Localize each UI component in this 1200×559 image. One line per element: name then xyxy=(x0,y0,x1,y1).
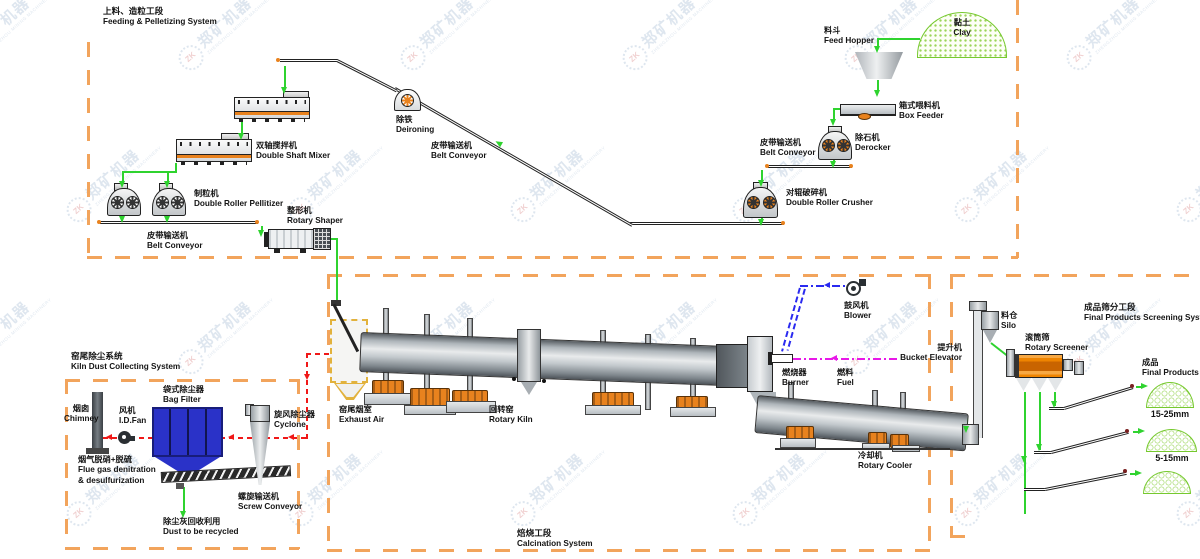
watermark-brand-text: 郑矿机器ZHENGZHOU MINING MACHINERY xyxy=(1083,0,1162,55)
kiln-support-base xyxy=(364,393,412,405)
derocker-roller-icon xyxy=(837,139,850,152)
label-cyclone-zh: 旋风除尘器 xyxy=(274,410,315,420)
calcination-border-top xyxy=(327,274,930,277)
label-deironing: 除铁 Deironing xyxy=(396,115,434,136)
mixer-bolts xyxy=(180,142,248,146)
label-cooler-en: Rotary Cooler xyxy=(858,461,912,471)
label-derocker-zh: 除石机 xyxy=(855,133,891,143)
label-final-products: 成品 Final Products xyxy=(1142,358,1199,379)
watermark: ZK郑矿机器ZHENGZHOU MINING MACHINERY xyxy=(395,0,497,75)
label-bagfilter-zh: 袋式除尘器 xyxy=(163,385,204,395)
belt-pulley-dot xyxy=(255,220,259,224)
kiln-support-base xyxy=(670,407,716,417)
flue-arrow xyxy=(228,434,234,440)
flow-dust-recycle xyxy=(183,487,185,513)
label-flue-gas: 烟气脱硝+脱硫 Flue gas denitration & desulfuri… xyxy=(78,455,158,486)
label-mixer-zh: 双轴搅拌机 xyxy=(256,141,330,151)
dust-border-top xyxy=(65,379,299,382)
label-belt-right-zh: 皮带输送机 xyxy=(760,138,816,148)
fuel-arrow xyxy=(831,355,837,361)
watermark-sub-text: ZHENGZHOU MINING MACHINERY xyxy=(1095,0,1163,55)
watermark-gear-icon: ZK xyxy=(505,496,540,531)
air-line-diagonal xyxy=(781,288,801,352)
shaper-foot xyxy=(300,249,306,253)
label-blower-zh: 鼓风机 xyxy=(844,301,871,311)
label-final-zh: 成品 xyxy=(1142,358,1199,368)
belt-pulley-dot xyxy=(765,164,769,168)
label-blower: 鼓风机 Blower xyxy=(844,301,871,322)
label-dust-recycled: 除尘灰回收利用 Dust to be recycled xyxy=(163,517,239,538)
silo-body xyxy=(981,311,999,330)
section-screening-en: Final Products Screening System xyxy=(1084,313,1200,323)
label-burner-zh: 燃烧器 xyxy=(782,368,809,378)
screener-hopper-v xyxy=(1016,378,1031,391)
label-burner-en: Burner xyxy=(782,378,809,388)
burner-pipe xyxy=(771,354,793,363)
section-label-feeding: 上料、造粒工段 Feeding & Pelletizing System xyxy=(103,6,217,27)
watermark-sub-text: ZHENGZHOU MINING MACHINERY xyxy=(0,0,53,55)
watermark: ZK郑矿机器ZHENGZHOU MINING MACHINERY xyxy=(949,132,1051,228)
label-clay: 黏土 Clay xyxy=(917,18,1007,39)
label-shaper-en: Rotary Shaper xyxy=(287,216,343,226)
watermark-gear-icon: ZK xyxy=(949,192,984,227)
label-fuel-zh: 燃料 xyxy=(837,368,854,378)
label-crusher-zh: 对辊破碎机 xyxy=(786,188,873,198)
feeding-section-border-right xyxy=(1016,0,1019,258)
flow-arrow xyxy=(758,180,764,187)
label-screw-en: Screw Conveyor xyxy=(238,502,302,512)
flow-shaper-to-kiln-drop xyxy=(336,238,338,302)
label-bagfilter-en: Bag Filter xyxy=(163,395,204,405)
screener-hopper-v xyxy=(1048,378,1063,391)
mixer-strip xyxy=(235,111,309,115)
pelletizer-roller-icon xyxy=(111,196,124,209)
label-derocker: 除石机 Derocker xyxy=(855,133,891,154)
blower-outlet xyxy=(859,279,866,286)
watermark-brand-text: 郑矿机器ZHENGZHOU MINING MACHINERY xyxy=(0,285,53,359)
deironing-magnet-icon xyxy=(401,94,414,107)
cooler-support-base xyxy=(780,438,816,448)
label-belt-conveyor-incline: 皮带输送机 Belt Conveyor xyxy=(431,141,487,162)
label-box-feeder-en: Box Feeder xyxy=(899,111,944,121)
flow-arrow xyxy=(258,230,264,237)
watermark-gear-icon: ZK xyxy=(505,192,540,227)
watermark: ZK郑矿机器ZHENGZHOU MINING MACHINERY xyxy=(1171,132,1200,228)
watermark-gear-icon: ZK xyxy=(1171,496,1200,531)
flow-screener-out-2 xyxy=(1039,392,1041,450)
section-dust-en: Kiln Dust Collecting System xyxy=(71,362,180,372)
label-feed-hopper-zh: 料斗 xyxy=(824,26,874,36)
label-box-feeder: 箱式喂料机 Box Feeder xyxy=(899,101,944,122)
flow-arrow xyxy=(164,216,170,223)
watermark-sub-text: ZHENGZHOU MINING MACHINERY xyxy=(207,298,275,360)
section-feeding-en: Feeding & Pelletizing System xyxy=(103,17,217,27)
watermark-sub-text: ZHENGZHOU MINING MACHINERY xyxy=(761,450,829,512)
section-dust-zh: 窑尾除尘系统 xyxy=(71,351,180,362)
label-deironing-zh: 除铁 xyxy=(396,115,434,125)
screener-drum-cap xyxy=(1015,354,1019,378)
cyclone-body xyxy=(250,405,270,422)
product-conveyor-3 xyxy=(1045,472,1127,491)
watermark-gear-icon: ZK xyxy=(1061,40,1096,75)
label-feed-hopper: 料斗 Feed Hopper xyxy=(824,26,874,47)
double-shaft-mixer-1 xyxy=(234,97,310,119)
label-feed-hopper-en: Feed Hopper xyxy=(824,36,874,46)
label-fluegas-zh: 烟气脱硝+脱硫 xyxy=(78,455,158,465)
section-calcination-en: Calcination System xyxy=(517,539,593,549)
flue-gas-line-top xyxy=(306,353,331,355)
watermark: ZK郑矿机器ZHENGZHOU MINING MACHINERY xyxy=(0,0,54,75)
label-screw-conveyor: 螺旋输送机 Screw Conveyor xyxy=(238,492,302,513)
watermark: ZK郑矿机器ZHENGZHOU MINING MACHINERY xyxy=(839,284,941,380)
label-crusher: 对辊破碎机 Double Roller Crusher xyxy=(786,188,873,209)
label-belt-left-zh: 皮带输送机 xyxy=(147,231,203,241)
box-feeder-roller xyxy=(858,113,871,120)
flow-arrow xyxy=(830,161,836,168)
product-conveyor-1 xyxy=(1064,386,1134,410)
flow-arrow xyxy=(119,216,125,223)
flow-arrow xyxy=(758,219,764,226)
label-belt-conveyor-left: 皮带输送机 Belt Conveyor xyxy=(147,231,203,252)
label-fluegas-en: Flue gas denitration & desulfurization xyxy=(78,465,158,486)
kiln-head-box xyxy=(716,344,748,388)
feed-hopper xyxy=(855,52,903,79)
label-kiln-en: Rotary Kiln xyxy=(489,415,533,425)
label-belt-conveyor-right: 皮带输送机 Belt Conveyor xyxy=(760,138,816,159)
flow-to-mixer1 xyxy=(284,66,286,89)
rotary-shaper xyxy=(268,229,314,249)
belt-pulley-dot xyxy=(97,220,101,224)
label-pelletizer-zh: 制粒机 xyxy=(194,189,283,199)
label-bag-filter: 袋式除尘器 Bag Filter xyxy=(163,385,204,406)
flow-arrow xyxy=(1141,383,1148,389)
watermark: ZK郑矿机器ZHENGZHOU MINING MACHINERY xyxy=(0,284,54,380)
kiln-junction-cone xyxy=(521,382,537,395)
product-pile-fines xyxy=(1143,471,1191,494)
crusher-roller-icon xyxy=(763,196,776,209)
product-conveyor-2 xyxy=(1051,431,1129,454)
watermark-sub-text: ZHENGZHOU MINING MACHINERY xyxy=(539,450,607,512)
product-pile-5-15 xyxy=(1146,429,1197,452)
mixer-feet xyxy=(181,162,247,166)
label-exhaust-zh: 窑尾烟室 xyxy=(339,405,384,415)
chimney-base xyxy=(86,448,109,454)
label-fuel-en: Fuel xyxy=(837,378,854,388)
label-fan-en: I.D.Fan xyxy=(119,416,146,426)
kiln-support-base xyxy=(585,405,641,415)
pelletizer-roller-icon xyxy=(126,196,139,209)
flow-arrow xyxy=(874,46,880,53)
screener-hopper-v xyxy=(1032,378,1047,391)
label-silo-zh: 料仓 xyxy=(1001,311,1017,321)
pelletizer-roller-icon xyxy=(171,196,184,209)
label-chimney: 烟囱 Chimney xyxy=(64,404,98,425)
bag-filter-divider xyxy=(169,409,171,455)
conveyor-head-pulley xyxy=(1125,429,1129,433)
watermark-sub-text: ZHENGZHOU MINING MACHINERY xyxy=(207,0,275,55)
watermark-gear-icon: ZK xyxy=(1171,192,1200,227)
id-fan-outlet xyxy=(129,436,135,441)
label-final-en: Final Products xyxy=(1142,368,1199,378)
shaper-flange xyxy=(264,232,268,247)
calcination-border-bottom xyxy=(327,549,930,552)
label-recycled-zh: 除尘灰回收利用 xyxy=(163,517,239,527)
flow-arrow xyxy=(1051,401,1057,408)
label-id-fan: 风机 I.D.Fan xyxy=(119,406,146,427)
label-shaper: 整形机 Rotary Shaper xyxy=(287,206,343,227)
label-clay-zh: 黏土 xyxy=(917,18,1007,28)
watermark-gear-icon: ZK xyxy=(617,40,652,75)
flow-arrow xyxy=(830,119,836,126)
flow-screener-out-1 xyxy=(1024,392,1026,514)
bucket-elevator-head xyxy=(969,301,987,311)
flow-arrow xyxy=(1135,470,1142,476)
belt-conveyor-top-flat xyxy=(280,59,338,62)
watermark-gear-icon: ZK xyxy=(173,40,208,75)
watermark-brand-text: 郑矿机器ZHENGZHOU MINING MACHINERY xyxy=(0,0,53,55)
belt-pulley-dot xyxy=(276,58,280,62)
air-arrow xyxy=(824,282,830,288)
blower-hub xyxy=(851,286,856,291)
section-calcination-zh: 焙烧工段 xyxy=(517,528,593,539)
label-cyclone-en: Cyclone xyxy=(274,420,315,430)
calcination-border-left xyxy=(327,274,330,551)
watermark-gear-icon: ZK xyxy=(61,192,96,227)
screw-conveyor-support xyxy=(176,483,184,489)
flow-arrow xyxy=(963,426,969,433)
label-size-5-15: 5-15mm xyxy=(1148,453,1196,464)
flow-arrow xyxy=(281,87,287,94)
watermark: ZK郑矿机器ZHENGZHOU MINING MACHINERY xyxy=(617,0,719,75)
watermark-gear-icon: ZK xyxy=(727,496,762,531)
mixer-strip xyxy=(177,154,251,158)
watermark: ZK郑矿机器ZHENGZHOU MINING MACHINERY xyxy=(727,436,829,532)
belt-pulley-dot xyxy=(849,164,853,168)
cooler-ground-line xyxy=(775,448,950,450)
screener-motor xyxy=(1074,361,1084,375)
screener-inlet xyxy=(1006,349,1015,377)
label-belt-incline-en: Belt Conveyor xyxy=(431,151,487,161)
label-belt-right-en: Belt Conveyor xyxy=(760,148,816,158)
watermark-brand-text: 郑矿机器ZHENGZHOU MINING MACHINERY xyxy=(417,0,496,55)
screening-border-bottom xyxy=(950,535,978,538)
flow-clay-to-hopper xyxy=(878,38,920,40)
watermark-gear-icon: ZK xyxy=(395,40,430,75)
section-feeding-zh: 上料、造粒工段 xyxy=(103,6,217,17)
product-conveyor-3-flat xyxy=(1024,488,1045,491)
label-elevator-zh: 提升机 xyxy=(890,343,962,353)
label-screener-zh: 滚筒筛 xyxy=(1025,333,1088,343)
label-pelletizer: 制粒机 Double Roller Pellitizer xyxy=(194,189,283,210)
label-chimney-zh: 烟囱 xyxy=(64,404,98,414)
section-label-screening: 成品筛分工段 Final Products Screening System xyxy=(1084,302,1200,323)
conveyor-head-pulley xyxy=(1130,384,1134,388)
label-exhaust-air: 窑尾烟室 Exhaust Air xyxy=(339,405,384,426)
flue-arrow xyxy=(106,434,112,440)
label-elevator-en: Bucket Elevator xyxy=(890,353,962,363)
flow-arrow xyxy=(1021,456,1027,463)
feeding-section-border-left xyxy=(87,42,90,258)
mixer-bolts xyxy=(238,100,306,104)
label-shaper-zh: 整形机 xyxy=(287,206,343,216)
pelletizer-roller-icon xyxy=(156,196,169,209)
crusher-roller-icon xyxy=(747,196,760,209)
watermark: ZK郑矿机器ZHENGZHOU MINING MACHINERY xyxy=(1061,0,1163,75)
air-line xyxy=(800,285,846,287)
label-size-15-25: 15-25mm xyxy=(1146,409,1194,420)
flow-arrow xyxy=(164,181,170,188)
flow-arrow xyxy=(1138,428,1145,434)
label-cooler-zh: 冷却机 xyxy=(858,451,912,461)
product-pile-15-25 xyxy=(1146,382,1194,408)
watermark-brand-text: 郑矿机器ZHENGZHOU MINING MACHINERY xyxy=(195,285,274,359)
label-box-feeder-zh: 箱式喂料机 xyxy=(899,101,944,111)
flow-arrow xyxy=(238,133,244,140)
watermark-brand-text: 郑矿机器ZHENGZHOU MINING MACHINERY xyxy=(527,437,606,511)
watermark-sub-text: ZHENGZHOU MINING MACHINERY xyxy=(983,450,1051,512)
flue-arrow-down xyxy=(304,374,310,380)
label-derocker-en: Derocker xyxy=(855,143,891,153)
label-recycled-en: Dust to be recycled xyxy=(163,527,239,537)
label-rotary-screener: 滚筒筛 Rotary Screener xyxy=(1025,333,1088,354)
section-screening-zh: 成品筛分工段 xyxy=(1084,302,1200,313)
screening-border-top xyxy=(950,274,1200,277)
screener-discharge-box xyxy=(1063,359,1073,371)
section-label-calcination: 焙烧工段 Calcination System xyxy=(517,528,593,549)
watermark-sub-text: ZHENGZHOU MINING MACHINERY xyxy=(429,0,497,55)
junction-dot xyxy=(542,379,546,383)
flue-arrow xyxy=(288,434,294,440)
derocker-roller-icon xyxy=(822,139,835,152)
label-exhaust-en: Exhaust Air xyxy=(339,415,384,425)
mixer-feet xyxy=(239,119,305,123)
conveyor-head-pulley xyxy=(1123,469,1127,473)
belt-conveyor-top-incline xyxy=(336,59,397,92)
label-clay-en: Clay xyxy=(917,28,1007,38)
dust-border-bottom xyxy=(65,547,299,550)
shaper-foot xyxy=(274,249,280,253)
label-kiln-zh: 回转窑 xyxy=(489,405,533,415)
label-fuel: 燃料 Fuel xyxy=(837,368,854,389)
rotary-shaper-grid xyxy=(313,228,331,250)
label-fan-zh: 风机 xyxy=(119,406,146,416)
belt-conveyor-right xyxy=(768,165,852,168)
label-blower-en: Blower xyxy=(844,311,871,321)
bag-filter-divider xyxy=(187,409,189,455)
id-fan-hub xyxy=(122,435,126,439)
flow-arrow xyxy=(874,90,880,97)
fuel-line xyxy=(793,358,897,360)
screening-border-left xyxy=(950,274,953,537)
rotary-screener-drum xyxy=(1015,354,1063,378)
label-rotary-kiln: 回转窑 Rotary Kiln xyxy=(489,405,533,426)
flow-arrow xyxy=(1036,444,1042,451)
product-conveyor-2-flat xyxy=(1034,451,1051,454)
label-mixer: 双轴搅拌机 Double Shaft Mixer xyxy=(256,141,330,162)
label-rotary-cooler: 冷却机 Rotary Cooler xyxy=(858,451,912,472)
label-silo: 料仓 Silo xyxy=(1001,311,1017,332)
watermark-gear-icon: ZK xyxy=(949,496,984,531)
label-deironing-en: Deironing xyxy=(396,125,434,135)
label-silo-en: Silo xyxy=(1001,321,1017,331)
flow-arrow xyxy=(119,181,125,188)
junction-dot xyxy=(512,377,516,381)
label-screw-zh: 螺旋输送机 xyxy=(238,492,302,502)
label-burner: 燃烧器 Burner xyxy=(782,368,809,389)
label-belt-left-en: Belt Conveyor xyxy=(147,241,203,251)
watermark-brand-text: 郑矿机器ZHENGZHOU MINING MACHINERY xyxy=(305,437,384,511)
label-screener-en: Rotary Screener xyxy=(1025,343,1088,353)
bag-filter-divider xyxy=(205,409,207,455)
label-pelletizer-en: Double Roller Pellitizer xyxy=(194,199,283,209)
process-flow-diagram: ZK郑矿机器ZHENGZHOU MINING MACHINERYZK郑矿机器ZH… xyxy=(0,0,1200,559)
section-label-dust: 窑尾除尘系统 Kiln Dust Collecting System xyxy=(71,351,180,372)
label-cyclone: 旋风除尘器 Cyclone xyxy=(274,410,315,431)
watermark-sub-text: ZHENGZHOU MINING MACHINERY xyxy=(0,298,53,360)
watermark-sub-text: ZHENGZHOU MINING MACHINERY xyxy=(651,0,719,55)
belt-pulley-dot xyxy=(781,221,785,225)
silo-cone xyxy=(983,330,997,343)
kiln-junction-box xyxy=(517,329,541,382)
feeding-section-border-bottom xyxy=(87,256,1018,259)
label-mixer-en: Double Shaft Mixer xyxy=(256,151,330,161)
watermark: ZK郑矿机器ZHENGZHOU MINING MACHINERY xyxy=(505,436,607,532)
label-belt-incline-zh: 皮带输送机 xyxy=(431,141,487,151)
watermark-brand-text: 郑矿机器ZHENGZHOU MINING MACHINERY xyxy=(971,133,1050,207)
label-crusher-en: Double Roller Crusher xyxy=(786,198,873,208)
dust-border-right xyxy=(297,379,300,549)
watermark-brand-text: 郑矿机器ZHENGZHOU MINING MACHINERY xyxy=(1193,133,1200,207)
double-shaft-mixer-2 xyxy=(176,139,252,162)
label-bucket-elevator: 提升机 Bucket Elevator xyxy=(890,343,962,364)
watermark: ZK郑矿机器ZHENGZHOU MINING MACHINERY xyxy=(173,284,275,380)
watermark-brand-text: 郑矿机器ZHENGZHOU MINING MACHINERY xyxy=(639,0,718,55)
label-chimney-en: Chimney xyxy=(64,414,98,424)
